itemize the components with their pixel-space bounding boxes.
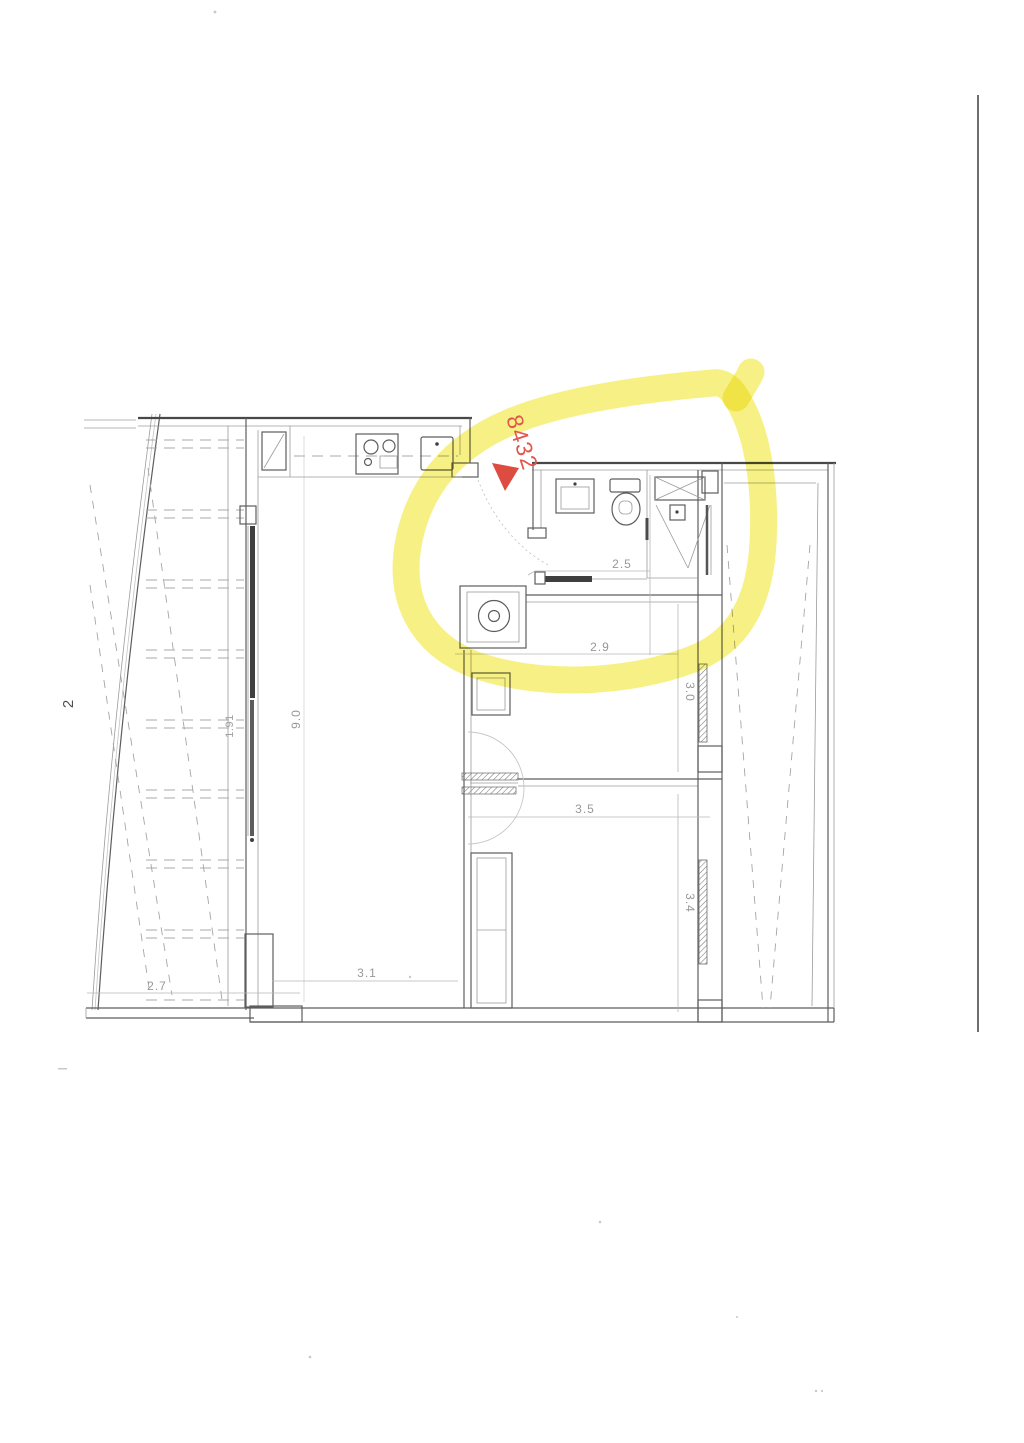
door-leaf (462, 787, 516, 794)
dimension-label-terrace-width: 2.7 (147, 979, 167, 993)
entry-door-swing (478, 480, 550, 566)
dimension-label-balcony-depth: 1.91 (224, 714, 236, 737)
dimension-label-living-width: 3.1 (357, 966, 377, 980)
window-icon (699, 860, 707, 964)
wall-column (245, 934, 273, 1007)
washbasin-icon (556, 479, 594, 513)
toilet-icon (610, 479, 640, 525)
wardrobes (471, 673, 512, 1008)
scan-artifacts (58, 11, 978, 1393)
bathroom (556, 470, 718, 578)
location-marker-icon (492, 463, 519, 491)
floor-plan-drawing: 2.5 2.9 3.5 3.1 2.7 3.0 3.4 9.0 1.91 2 8… (0, 0, 1024, 1443)
dimension-label-bathroom: 2.5 (612, 557, 632, 571)
windows (699, 664, 707, 964)
hall-sliding-door (535, 572, 647, 584)
washing-machine-icon (460, 586, 526, 648)
window-icon (699, 664, 707, 742)
stove-icon (356, 434, 398, 474)
door-leaf (462, 773, 518, 780)
page-number: 2 (60, 700, 77, 708)
walls (240, 417, 836, 1022)
dimension-label-bedroom1-width: 2.9 (590, 640, 610, 654)
shower-icon (656, 505, 711, 575)
site-boundary (84, 414, 222, 1010)
pillar (698, 746, 722, 772)
dimension-lines (87, 436, 710, 1012)
dimension-label-living-length: 9.0 (289, 709, 303, 729)
highlight-tail (736, 372, 751, 398)
dimension-label-bedroom2-depth: 3.4 (683, 893, 697, 913)
pillar (698, 1000, 722, 1022)
scanned-floor-plan-page: 2.5 2.9 3.5 3.1 2.7 3.0 3.4 9.0 1.91 2 8… (0, 0, 1024, 1443)
dimension-label-bedroom1-depth: 3.0 (683, 682, 697, 702)
sliding-window (240, 506, 256, 842)
dimension-label-bedroom2-width: 3.5 (575, 802, 595, 816)
